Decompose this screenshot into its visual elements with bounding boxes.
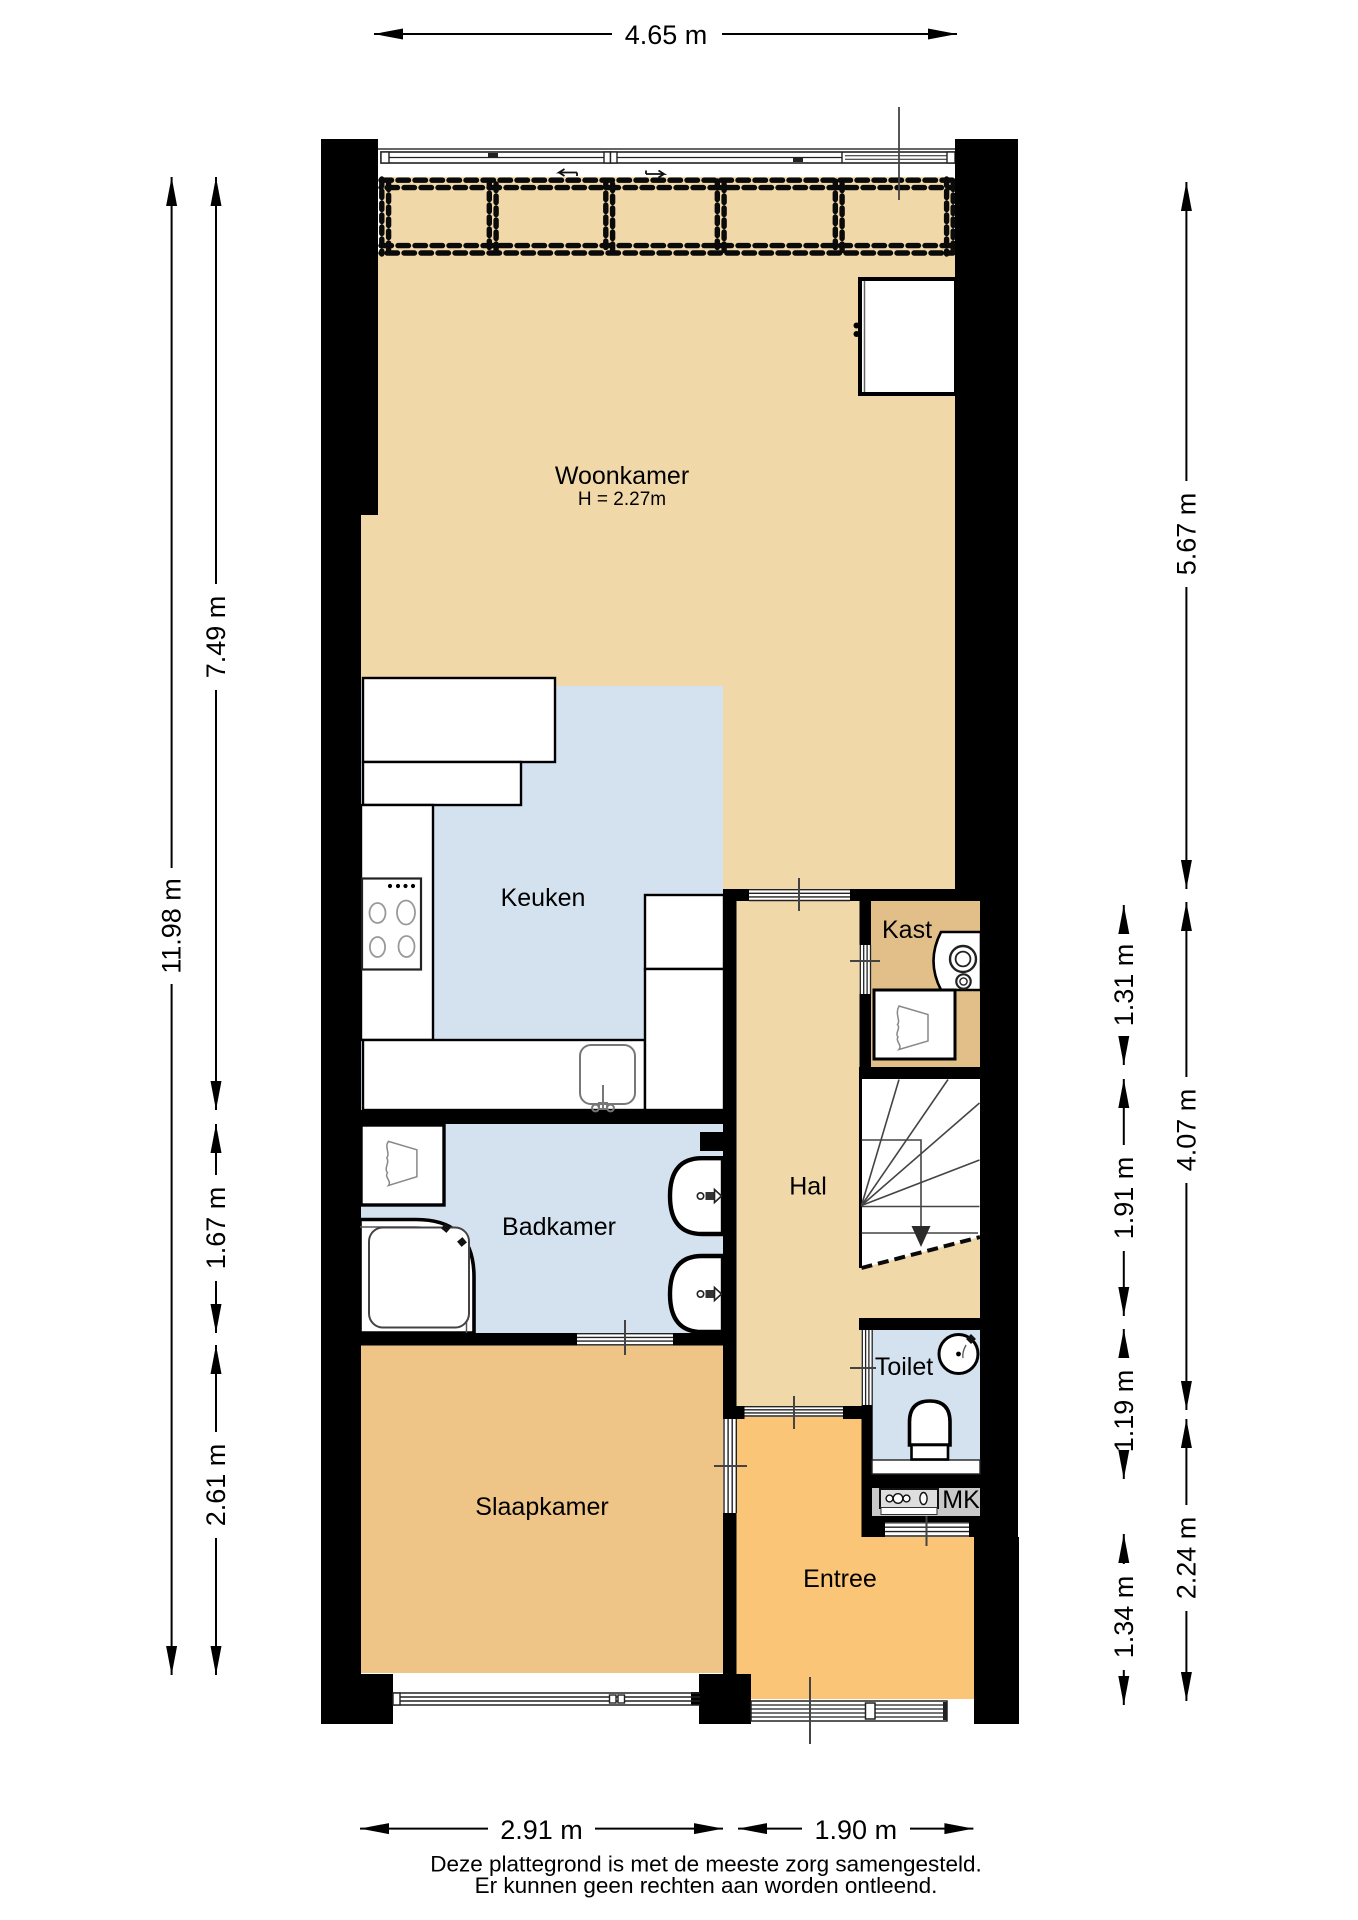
svg-text:7.49 m: 7.49 m: [201, 596, 231, 679]
svg-text:2.61 m: 2.61 m: [201, 1444, 231, 1527]
svg-text:2.91 m: 2.91 m: [500, 1815, 583, 1845]
svg-text:4.65 m: 4.65 m: [625, 20, 708, 50]
svg-text:Kast: Kast: [882, 916, 932, 944]
svg-text:MK: MK: [942, 1486, 980, 1514]
svg-text:1.31 m: 1.31 m: [1109, 944, 1139, 1027]
svg-text:11.98 m: 11.98 m: [157, 878, 187, 974]
svg-text:4.07 m: 4.07 m: [1171, 1089, 1201, 1172]
svg-text:Er kunnen geen rechten aan wor: Er kunnen geen rechten aan worden ontlee…: [475, 1873, 938, 1898]
svg-text:Toilet: Toilet: [875, 1353, 933, 1381]
svg-text:1.90 m: 1.90 m: [815, 1815, 898, 1845]
svg-text:Keuken: Keuken: [501, 884, 586, 912]
svg-text:H = 2.27m: H = 2.27m: [578, 489, 666, 510]
svg-text:Slaapkamer: Slaapkamer: [475, 1493, 608, 1521]
svg-text:1.34 m: 1.34 m: [1109, 1576, 1139, 1659]
svg-text:Woonkamer: Woonkamer: [555, 462, 689, 490]
svg-text:1.91 m: 1.91 m: [1109, 1157, 1139, 1240]
svg-text:Hal: Hal: [789, 1173, 827, 1201]
svg-text:Entree: Entree: [803, 1565, 877, 1593]
svg-text:1.67 m: 1.67 m: [201, 1187, 231, 1270]
svg-text:1.19 m: 1.19 m: [1109, 1370, 1139, 1453]
svg-text:2.24 m: 2.24 m: [1171, 1517, 1201, 1600]
svg-text:5.67 m: 5.67 m: [1171, 493, 1201, 576]
svg-text:Badkamer: Badkamer: [502, 1213, 616, 1241]
